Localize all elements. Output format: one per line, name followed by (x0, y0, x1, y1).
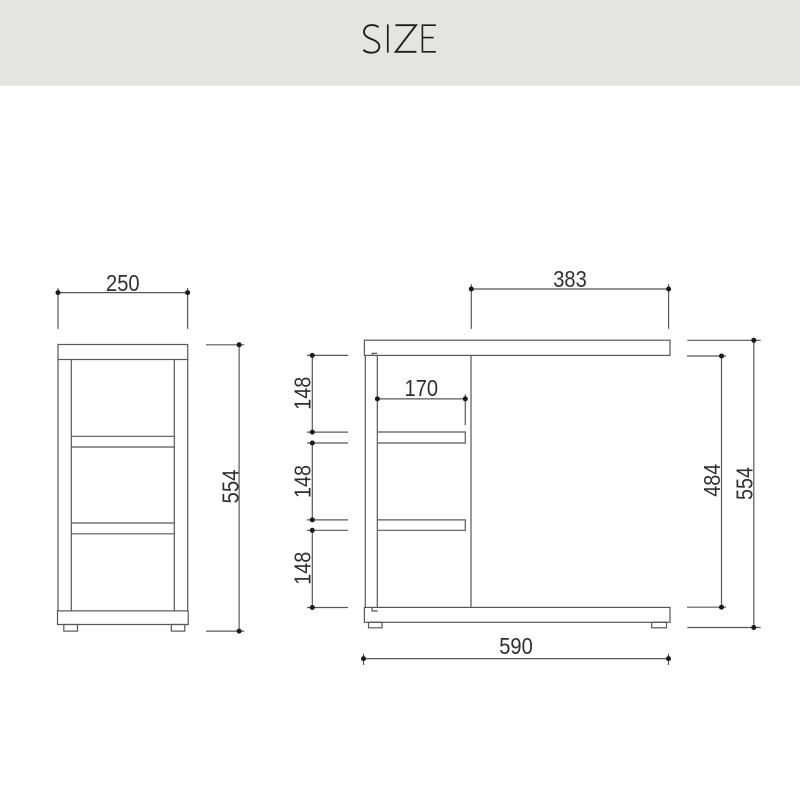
svg-text:554: 554 (217, 469, 243, 503)
svg-text:383: 383 (553, 266, 587, 292)
svg-text:170: 170 (405, 375, 439, 401)
svg-text:148: 148 (289, 552, 315, 585)
svg-text:148: 148 (289, 377, 315, 410)
svg-text:590: 590 (499, 633, 533, 659)
svg-text:148: 148 (289, 465, 315, 498)
svg-text:484: 484 (699, 464, 725, 497)
svg-text:250: 250 (106, 270, 140, 296)
svg-text:554: 554 (731, 467, 757, 500)
